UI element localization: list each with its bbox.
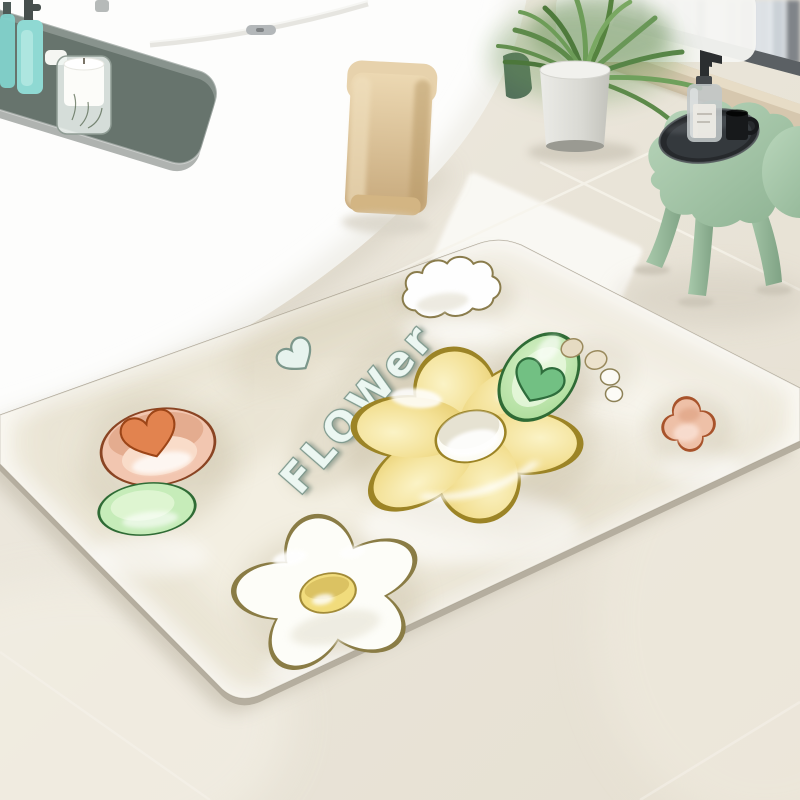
leg-foot-shadow — [678, 297, 714, 307]
faucet-chrome — [95, 0, 109, 12]
tub-overflow-hole — [256, 28, 264, 32]
leg-foot-shadow — [634, 265, 670, 275]
pot-rim — [540, 61, 610, 79]
towel-hem — [350, 194, 421, 216]
teal-bottle — [0, 14, 15, 88]
bottle-pump-spout — [24, 4, 41, 11]
scene-canvas: FLOWer — [0, 0, 800, 800]
cup-opening — [726, 110, 748, 117]
towel — [339, 60, 438, 236]
bubble — [601, 369, 620, 385]
plant-pot — [540, 70, 610, 146]
bathroom-scene: FLOWer — [0, 0, 800, 800]
leg-foot-shadow — [756, 285, 792, 295]
pot-base — [546, 140, 604, 152]
bottle-liquid-highlight — [21, 30, 33, 86]
window-frame-post — [786, 0, 800, 64]
bottle-label — [693, 104, 716, 138]
bubble — [606, 387, 623, 402]
